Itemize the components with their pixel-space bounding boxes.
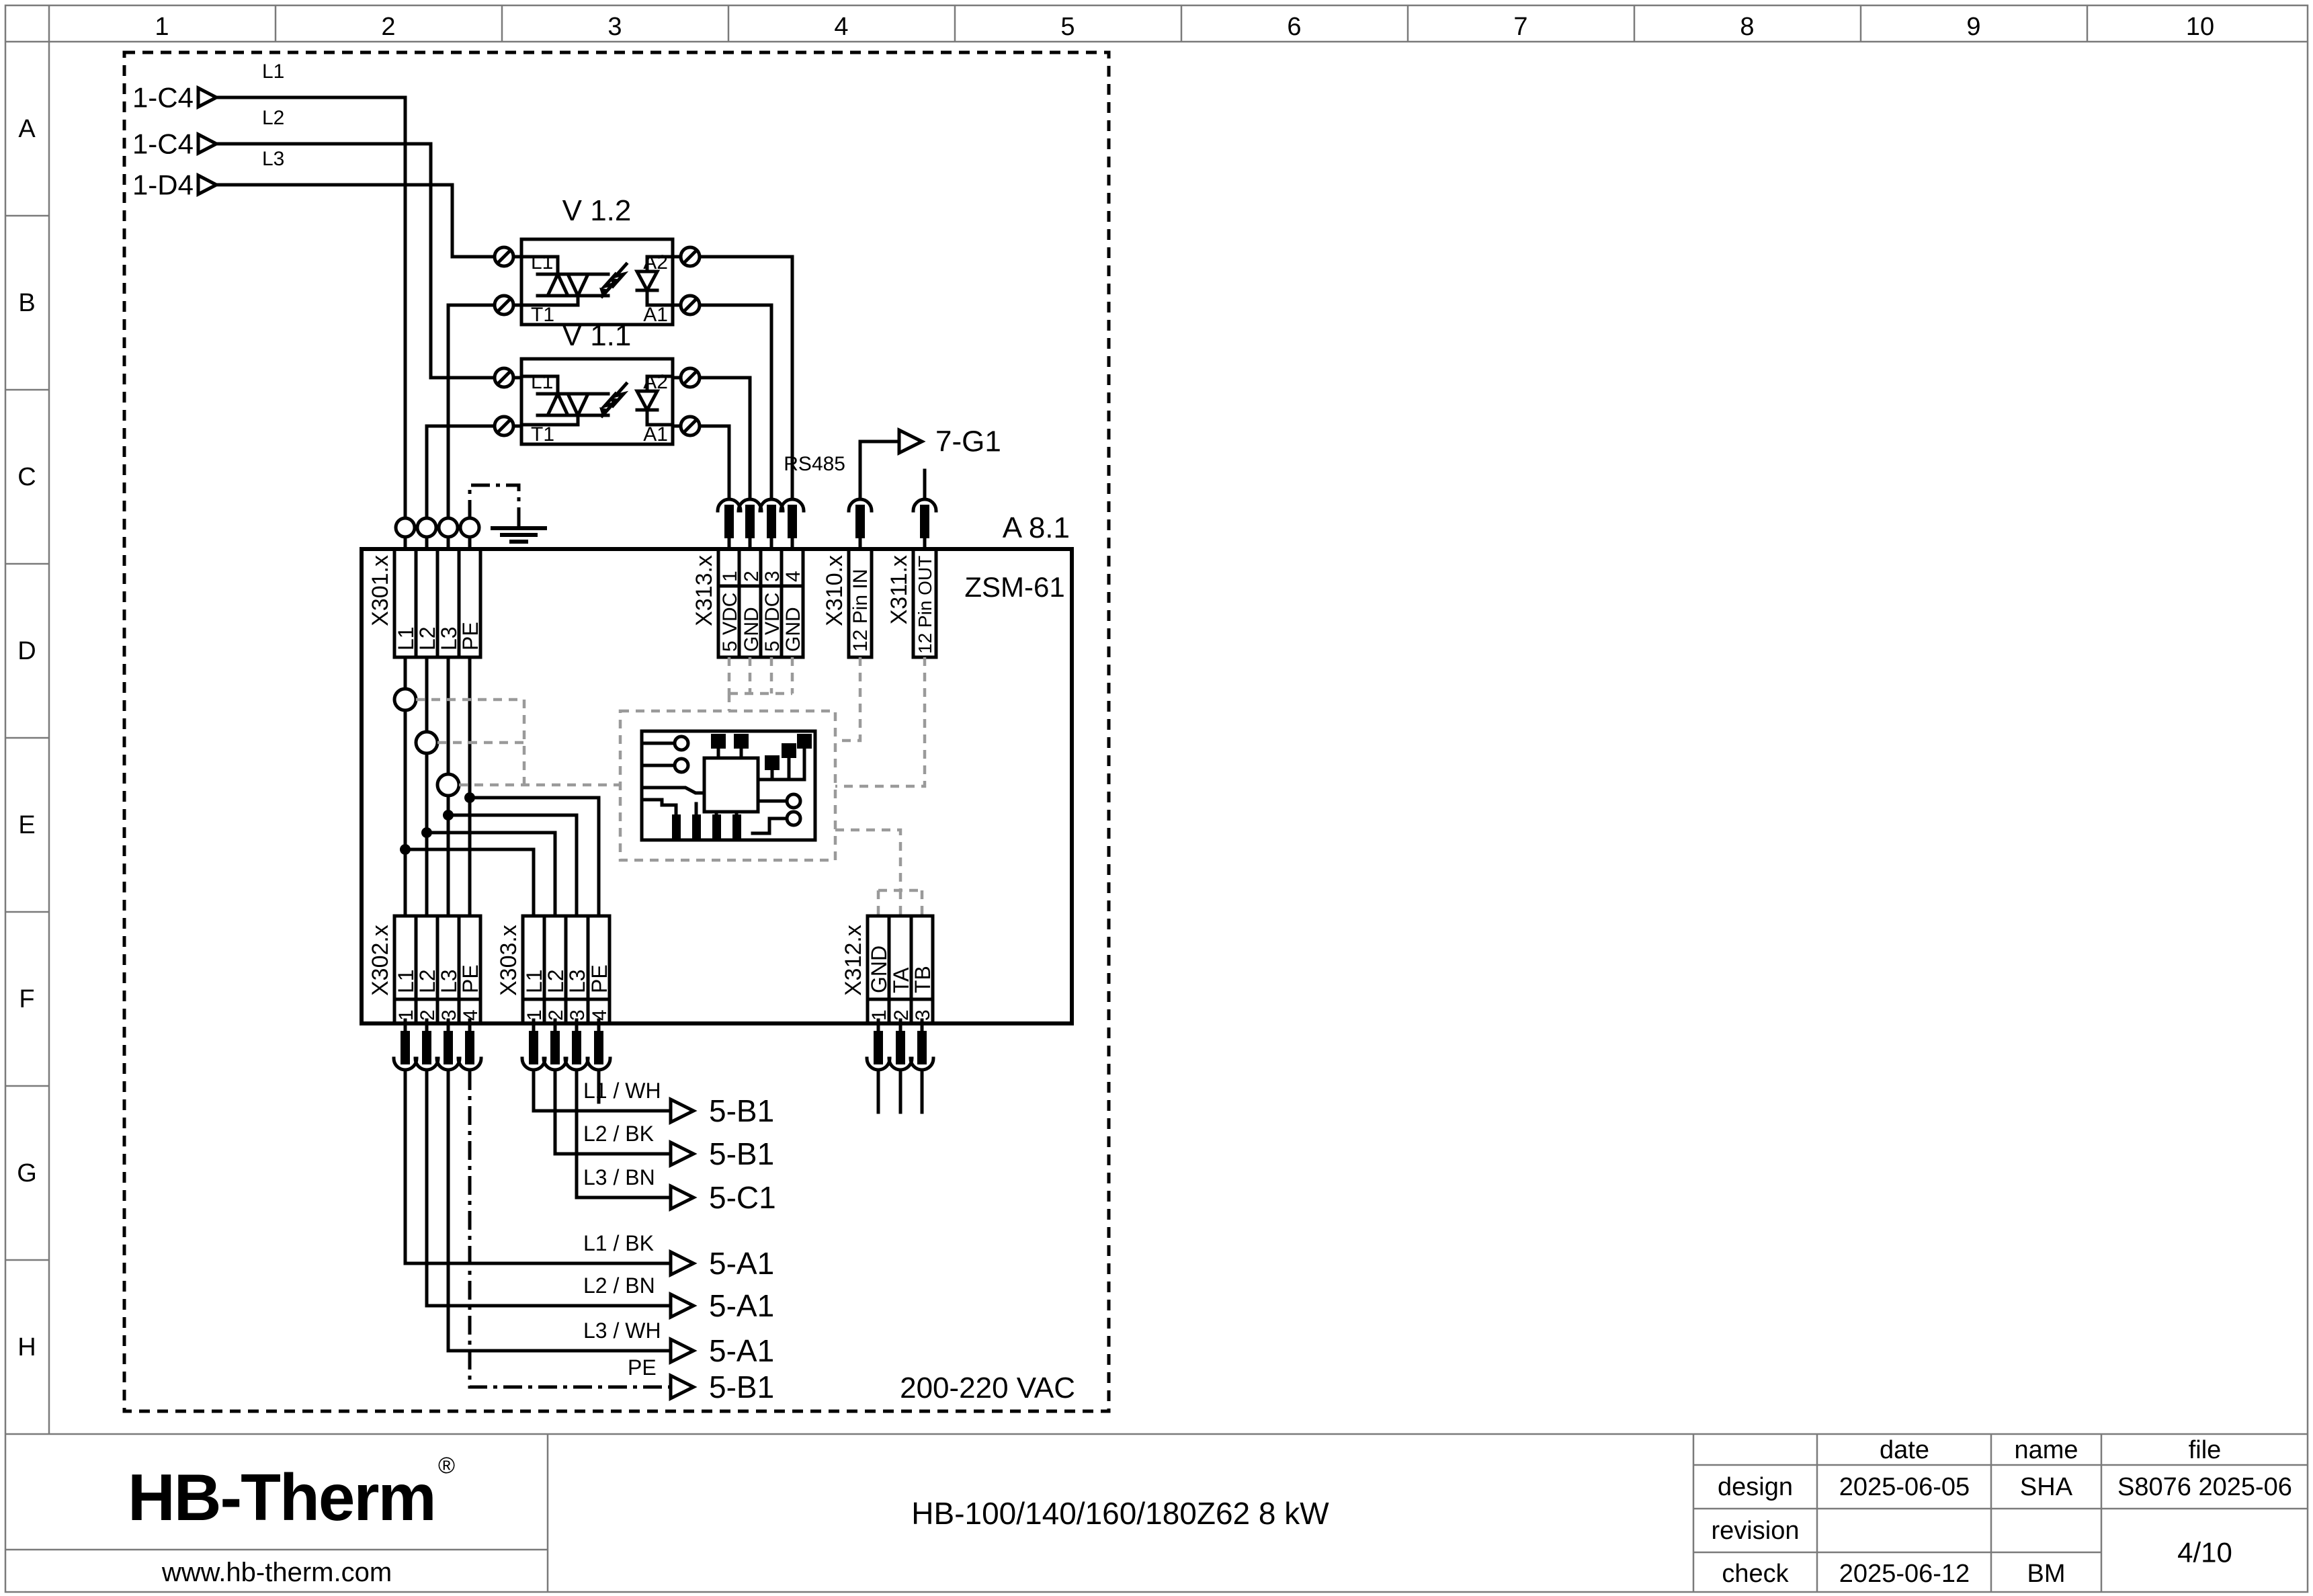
connector-x313: X313.x 1 2 3 4 5 VDC GND 5 VDC GND xyxy=(691,549,804,657)
schematic-sheet: 1 2 3 4 5 6 7 8 9 10 A B C D E F G H 1-C… xyxy=(0,0,2313,1596)
drawing-frame xyxy=(124,52,1109,1411)
current-sensor-icon xyxy=(394,689,416,710)
x301-pin-pe: PE xyxy=(458,622,482,650)
connector-x301-label: X301.x xyxy=(368,555,393,626)
x302-name-pe: PE xyxy=(458,964,482,993)
x312-name-gnd: GND xyxy=(867,946,891,993)
grid-row-d: D xyxy=(17,637,36,665)
file-value: S8076 2025-06 xyxy=(2117,1473,2292,1501)
ssr-v11-t1: T1 xyxy=(531,423,554,446)
grid-col-6: 6 xyxy=(1287,13,1301,41)
wire-label: PE xyxy=(628,1355,657,1380)
ssr-v11-id: V 1.1 xyxy=(562,319,632,352)
grid-col-9: 9 xyxy=(1966,13,1980,41)
x302-name-l3: L3 xyxy=(437,969,461,993)
supply-voltage: 200-220 VAC xyxy=(900,1372,1075,1404)
x310-name: 12 Pin IN xyxy=(849,569,872,652)
ssr-v12-id: V 1.2 xyxy=(562,194,632,227)
off-page-arrow-icon xyxy=(671,1186,693,1209)
company-logo: HB-Therm xyxy=(128,1460,435,1534)
x313-num-4: 4 xyxy=(782,571,804,582)
module-phase-lines xyxy=(394,657,599,916)
connector-x311-label: X311.x xyxy=(886,555,912,624)
ssr-v12-a1: A1 xyxy=(643,304,668,326)
connector-x303: X303.x L1 L2 L3 PE 1 2 3 4 xyxy=(496,916,612,1023)
connector-x310: X310.x 12 Pin IN xyxy=(822,549,872,657)
grid-row-g: G xyxy=(17,1159,37,1187)
grid-col-10: 10 xyxy=(2186,13,2214,41)
ssr-v11-a1: A1 xyxy=(643,423,668,446)
check-date: 2025-06-12 xyxy=(1839,1560,1970,1588)
output-dest: 5-B1 xyxy=(709,1370,774,1404)
x311-name: 12 Pin OUT xyxy=(915,556,935,654)
x312-name-tb: TB xyxy=(911,966,935,993)
wire-label: L2 / BK xyxy=(583,1122,654,1146)
module-ref: A 8.1 xyxy=(1003,511,1070,544)
wire-label: L1 / WH xyxy=(583,1079,661,1103)
check-name: BM xyxy=(2027,1560,2066,1588)
off-page-arrow-icon xyxy=(671,1142,693,1165)
design-name: SHA xyxy=(2020,1473,2073,1501)
grid-row-b: B xyxy=(18,289,35,317)
ssr-v12-l1: L1 xyxy=(531,251,553,274)
current-sensor-icon xyxy=(437,774,459,796)
x301-pin-l3: L3 xyxy=(437,626,461,650)
grid-col-7: 7 xyxy=(1513,13,1527,41)
grid-col-5: 5 xyxy=(1060,13,1075,41)
output-dest: 5-A1 xyxy=(709,1246,774,1281)
row-label-design: design xyxy=(1718,1473,1793,1501)
off-page-arrow-icon xyxy=(899,430,922,453)
ssr-v12-a2: A2 xyxy=(643,251,668,274)
ssr-v11-a2: A2 xyxy=(643,371,668,393)
grid-col-4: 4 xyxy=(834,13,848,41)
output-dest: 5-A1 xyxy=(709,1288,774,1323)
pe-socket-icon xyxy=(396,518,415,537)
off-page-arrow-icon xyxy=(198,88,216,107)
wire-label-l3: L3 xyxy=(262,148,284,170)
off-page-arrow-icon xyxy=(671,1294,693,1317)
ssr-v11: V 1.1 L1 T1 A2 A1 xyxy=(427,319,750,519)
current-sensor-icon xyxy=(416,732,437,753)
rs485-link: 7-G1 RS485 xyxy=(784,425,1001,499)
ssr-v12: V 1.2 L1 T1 A2 A1 xyxy=(448,194,792,519)
grid-row-h: H xyxy=(17,1333,36,1361)
x302-name-l2: L2 xyxy=(415,969,439,993)
x313-num-1: 1 xyxy=(719,571,741,582)
input-references: 1-C4 1-C4 1-D4 L1 L2 L3 xyxy=(132,60,521,519)
x303-name-l2: L2 xyxy=(544,969,568,993)
x313-num-3: 3 xyxy=(761,571,784,582)
wire-label-l2: L2 xyxy=(262,107,284,129)
grid-row-a: A xyxy=(18,115,36,143)
x303-name-l3: L3 xyxy=(565,969,589,993)
wire-label: L3 / WH xyxy=(583,1318,661,1343)
grid-col-3: 3 xyxy=(607,13,622,41)
module-zsm61: A 8.1 ZSM-61 X301.x L1 L2 L3 PE X313.x 1… xyxy=(362,511,1072,1023)
registered-mark-icon: ® xyxy=(438,1453,455,1478)
connector-x303-label: X303.x xyxy=(496,925,521,996)
row-label-revision: revision xyxy=(1712,1517,1800,1545)
drawing-title: HB-100/140/160/180Z62 8 kW xyxy=(911,1496,1329,1531)
wire-label: L1 / BK xyxy=(583,1231,654,1255)
connector-x310-label: X310.x xyxy=(822,555,847,626)
connector-x302-label: X302.x xyxy=(368,925,393,996)
rs485-label: RS485 xyxy=(784,453,845,475)
off-page-arrow-icon xyxy=(671,1099,693,1122)
x302-name-l1: L1 xyxy=(394,969,418,993)
off-page-arrow-icon xyxy=(198,175,216,194)
row-label-check: check xyxy=(1722,1560,1789,1588)
x313-name-3: 5 VDC xyxy=(761,593,784,652)
x313-num-2: 2 xyxy=(741,571,763,582)
outputs-upper-group: L1 / WH L2 / BK L3 / BN 5-B1 5-B1 5-C1 xyxy=(534,1071,776,1215)
off-page-arrow-icon xyxy=(671,1339,693,1362)
x313-name-2: GND xyxy=(741,607,763,652)
off-page-arrow-icon xyxy=(671,1252,693,1275)
x301-pin-l1: L1 xyxy=(394,626,418,650)
x301-pin-l2: L2 xyxy=(415,626,439,650)
x303-name-l1: L1 xyxy=(522,969,546,993)
rs485-dest: 7-G1 xyxy=(935,425,1001,458)
input-ref-l1: 1-C4 xyxy=(132,82,194,114)
title-block: HB-Therm ® www.hb-therm.com HB-100/140/1… xyxy=(5,1434,2308,1592)
ssr-v11-l1: L1 xyxy=(531,371,553,393)
x313-name-4: GND xyxy=(782,607,804,652)
wire-label: L3 / BN xyxy=(583,1165,655,1189)
sheet-grid: 1 2 3 4 5 6 7 8 9 10 A B C D E F G H xyxy=(5,5,2308,1592)
connector-x312: X312.x GND TA TB 1 2 3 xyxy=(841,916,935,1023)
x313-name-1: 5 VDC xyxy=(719,593,741,652)
grid-col-1: 1 xyxy=(155,13,169,41)
wire-label-l1: L1 xyxy=(262,60,284,83)
col-header-name: name xyxy=(2014,1436,2078,1464)
x312-name-ta: TA xyxy=(889,967,913,993)
connector-x313-label: X313.x xyxy=(691,555,717,626)
grid-row-e: E xyxy=(18,811,35,839)
off-page-arrow-icon xyxy=(198,134,216,153)
pcb-graphic xyxy=(620,711,835,860)
grid-col-8: 8 xyxy=(1740,13,1754,41)
connector-x311: X311.x 12 Pin OUT xyxy=(886,549,936,657)
grid-col-2: 2 xyxy=(381,13,395,41)
off-page-arrow-icon xyxy=(671,1376,693,1398)
input-ref-l3: 1-D4 xyxy=(132,169,194,201)
wire-label: L2 / BN xyxy=(583,1273,655,1298)
website-link[interactable]: www.hb-therm.com xyxy=(161,1558,392,1587)
output-dest: 5-B1 xyxy=(709,1136,774,1171)
grid-row-f: F xyxy=(19,985,34,1013)
connector-x312-label: X312.x xyxy=(841,925,866,996)
col-header-date: date xyxy=(1880,1436,1929,1464)
col-header-file: file xyxy=(2189,1436,2222,1464)
module-name: ZSM-61 xyxy=(964,571,1064,603)
input-ref-l2: 1-C4 xyxy=(132,128,194,160)
grid-row-c: C xyxy=(17,463,36,491)
output-dest: 5-B1 xyxy=(709,1093,774,1128)
ssr-v12-t1: T1 xyxy=(531,304,554,326)
output-dest: 5-A1 xyxy=(709,1333,774,1368)
x303-name-pe: PE xyxy=(587,964,612,993)
page-number: 4/10 xyxy=(2177,1537,2232,1568)
output-dest: 5-C1 xyxy=(709,1180,776,1215)
pe-ground xyxy=(396,485,547,549)
connector-x302: X302.x L1 L2 L3 PE 1 2 3 4 xyxy=(368,916,482,1023)
connector-x301: X301.x L1 L2 L3 PE xyxy=(368,549,482,657)
design-date: 2025-06-05 xyxy=(1839,1473,1970,1501)
